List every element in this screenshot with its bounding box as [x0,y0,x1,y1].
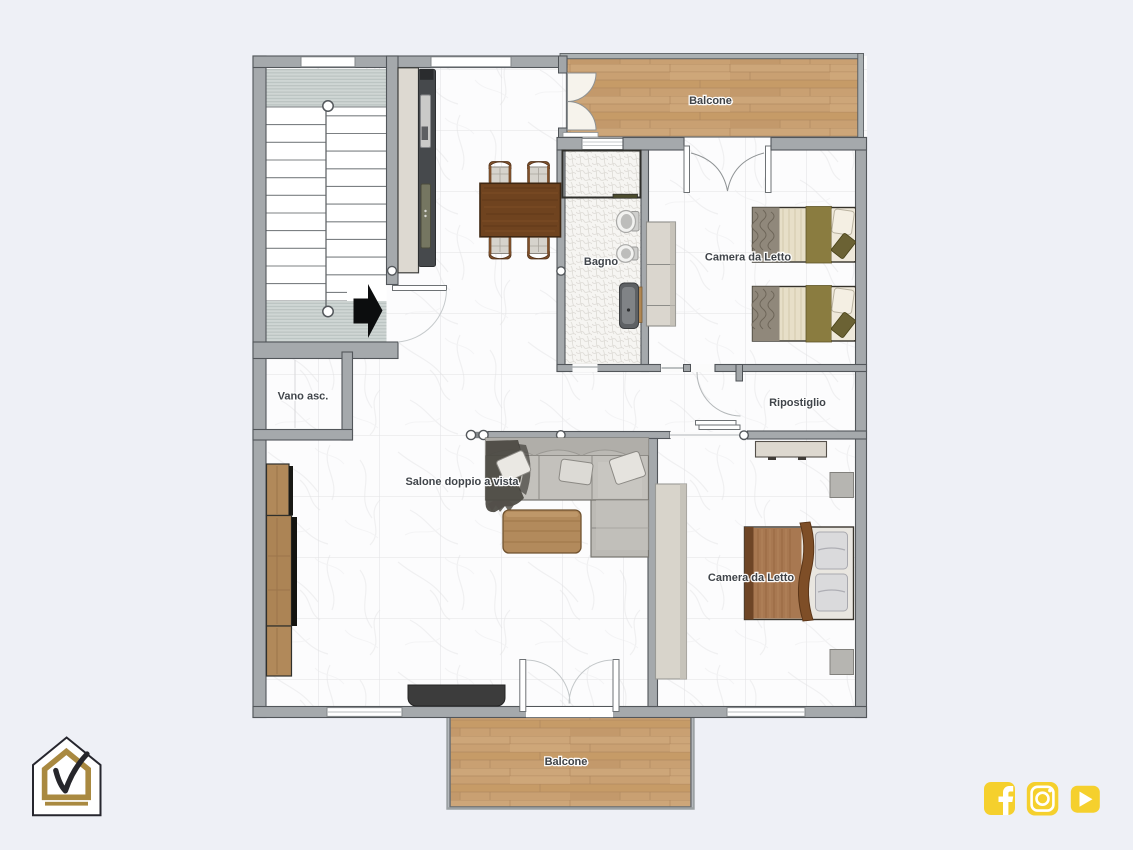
svg-text:Camera da Letto: Camera da Letto [705,252,791,264]
svg-text:Ripostiglio: Ripostiglio [769,397,826,409]
svg-text:Balcone: Balcone [545,756,588,768]
svg-text:Salone doppio a vista: Salone doppio a vista [405,476,519,488]
svg-text:Balcone: Balcone [689,95,732,107]
svg-text:Vano asc.: Vano asc. [278,391,329,403]
svg-text:Bagno: Bagno [584,256,619,268]
svg-text:Camera da Letto: Camera da Letto [708,572,794,584]
